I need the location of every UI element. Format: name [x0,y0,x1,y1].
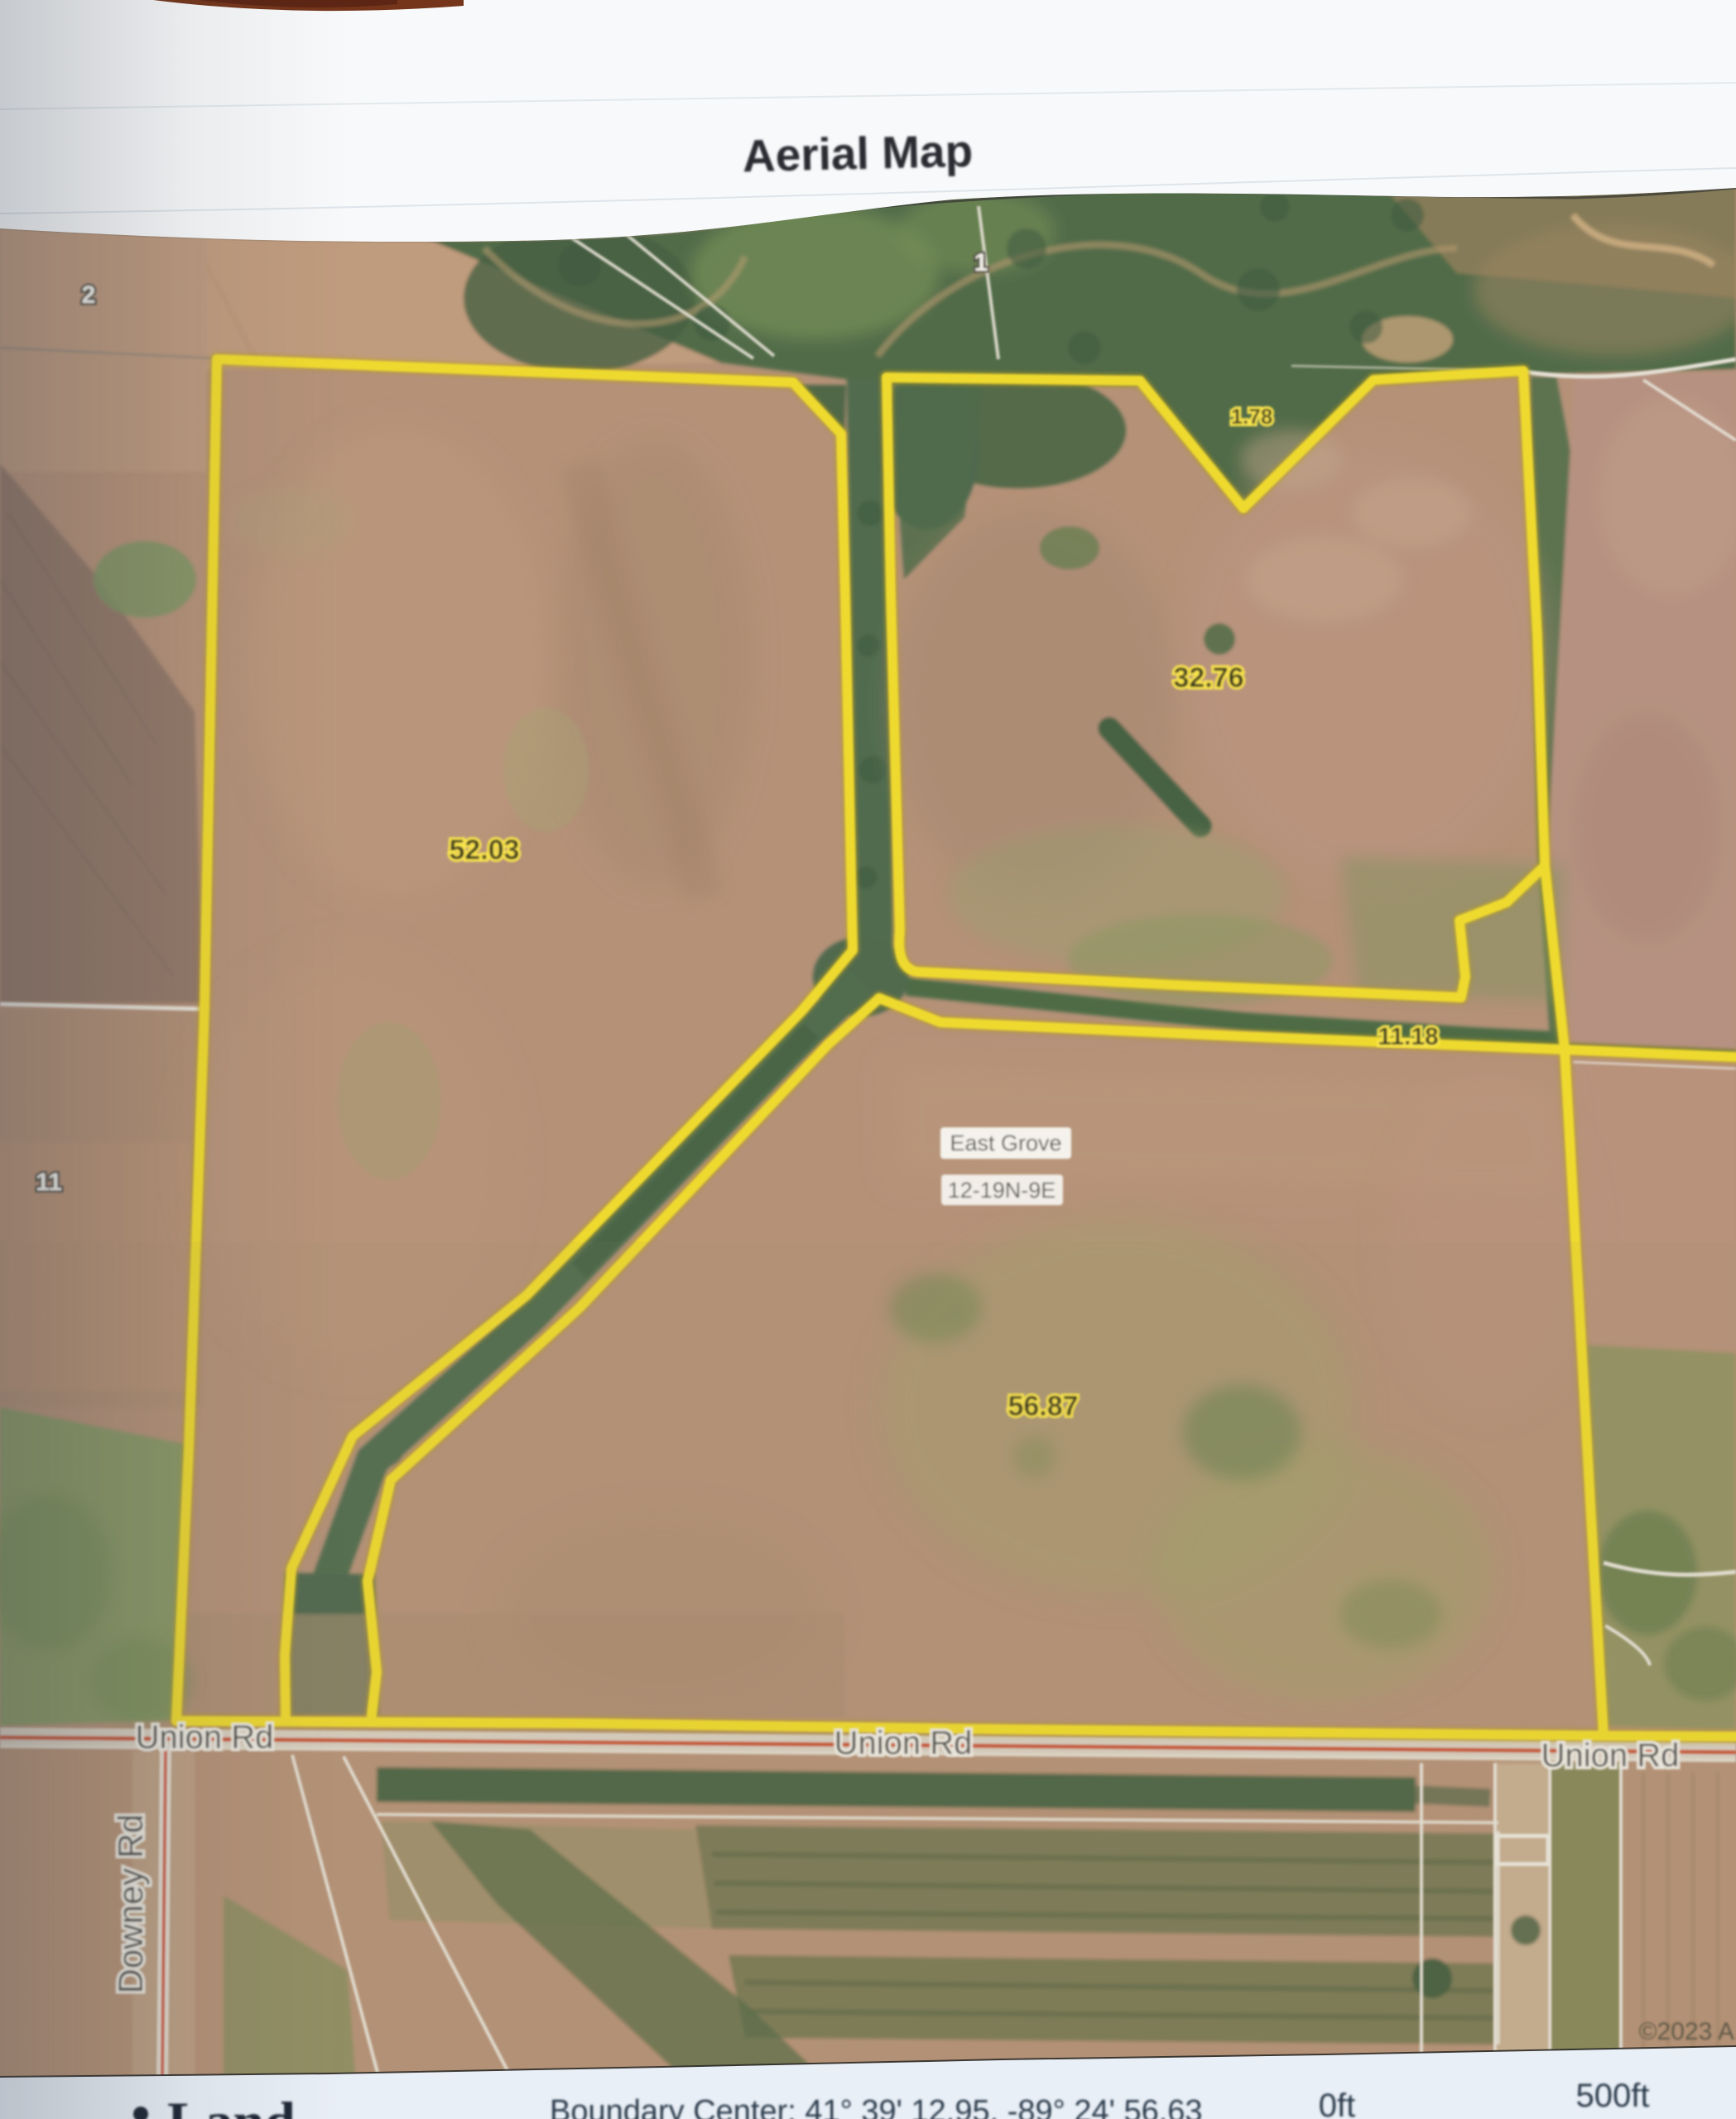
svg-text:0ft: 0ft [1319,2088,1355,2119]
svg-text:Aerial Map: Aerial Map [742,125,973,181]
svg-text:500ft: 500ft [1576,2078,1650,2114]
svg-text:Boundary Center: 41° 39' 12.95: Boundary Center: 41° 39' 12.95, -89° 24'… [550,2094,1203,2119]
